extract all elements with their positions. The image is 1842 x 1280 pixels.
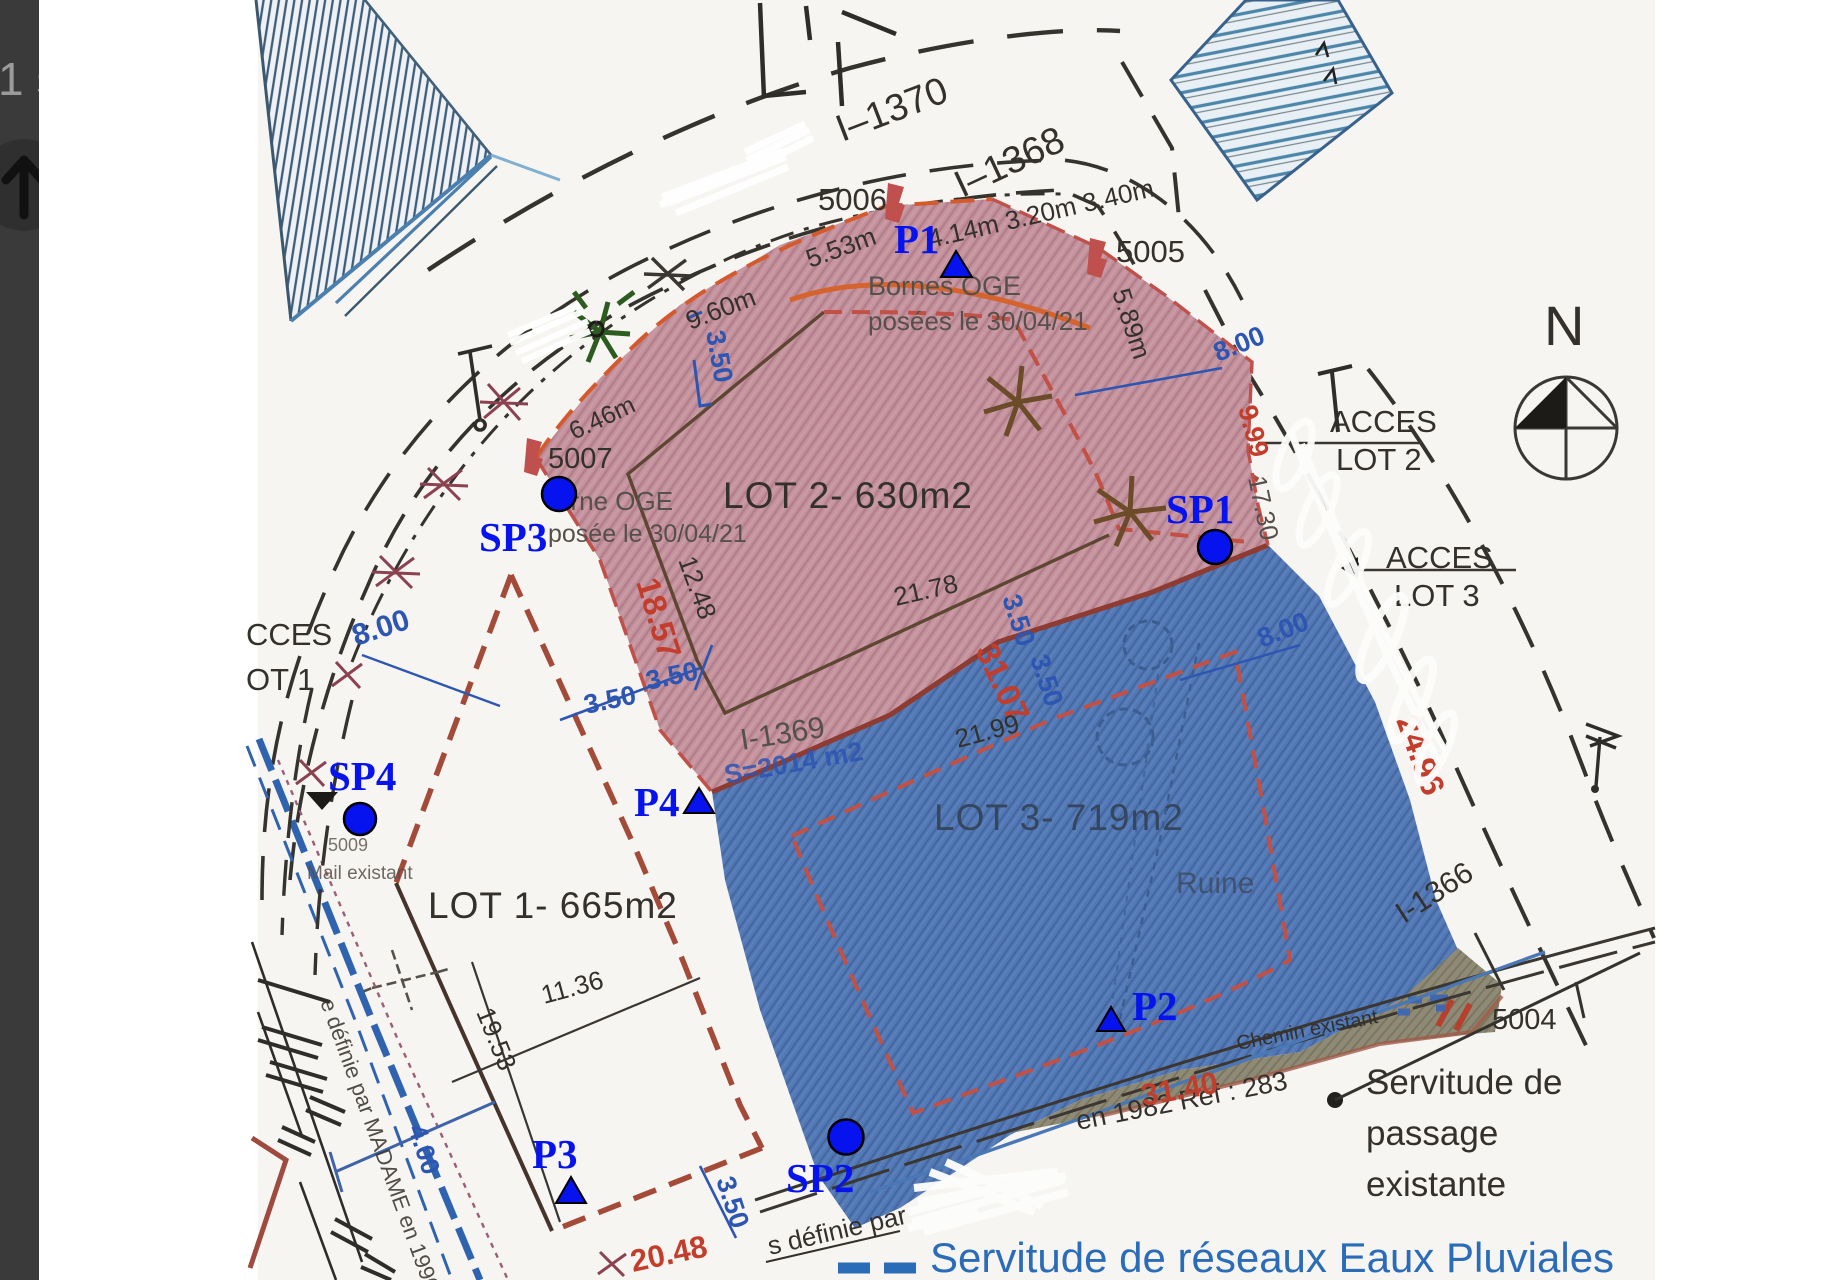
svg-text:LOT 3- 719m2: LOT 3- 719m2 <box>934 797 1184 838</box>
svg-text:passage: passage <box>1366 1114 1498 1153</box>
svg-text:posées le 30/04/21: posées le 30/04/21 <box>868 306 1088 336</box>
svg-text:SP3: SP3 <box>479 514 547 560</box>
svg-text:LOT 2: LOT 2 <box>1336 442 1422 477</box>
svg-text:posée le 30/04/21: posée le 30/04/21 <box>548 520 747 548</box>
svg-text:Servitude de: Servitude de <box>1366 1063 1563 1102</box>
svg-text:ACCES: ACCES <box>1330 404 1437 439</box>
svg-text:P1: P1 <box>894 216 940 262</box>
svg-text:existante: existante <box>1366 1165 1506 1204</box>
svg-text:P4: P4 <box>634 779 680 825</box>
svg-text:N: N <box>1544 294 1584 357</box>
svg-text:5009: 5009 <box>328 835 368 855</box>
svg-text:5007: 5007 <box>548 443 613 475</box>
svg-text:5006: 5006 <box>818 182 887 217</box>
svg-text:P2: P2 <box>1132 983 1178 1029</box>
svg-text:Servitude de réseaux Eaux Pluv: Servitude de réseaux Eaux Pluviales <box>930 1234 1614 1280</box>
svg-text:LOT 2- 630m2: LOT 2- 630m2 <box>723 475 973 516</box>
svg-text:CCES: CCES <box>246 617 332 652</box>
svg-text:P3: P3 <box>532 1131 578 1177</box>
svg-text:Mail existant: Mail existant <box>307 863 413 884</box>
svg-text:SP2: SP2 <box>786 1155 854 1201</box>
svg-text:5005: 5005 <box>1116 234 1185 269</box>
svg-text:SP1: SP1 <box>1166 486 1234 532</box>
svg-text:Ruine: Ruine <box>1176 867 1254 900</box>
svg-text:LOT 1- 665m2: LOT 1- 665m2 <box>428 885 678 926</box>
svg-text:SP4: SP4 <box>328 753 396 799</box>
svg-text:OT 1: OT 1 <box>246 662 314 697</box>
